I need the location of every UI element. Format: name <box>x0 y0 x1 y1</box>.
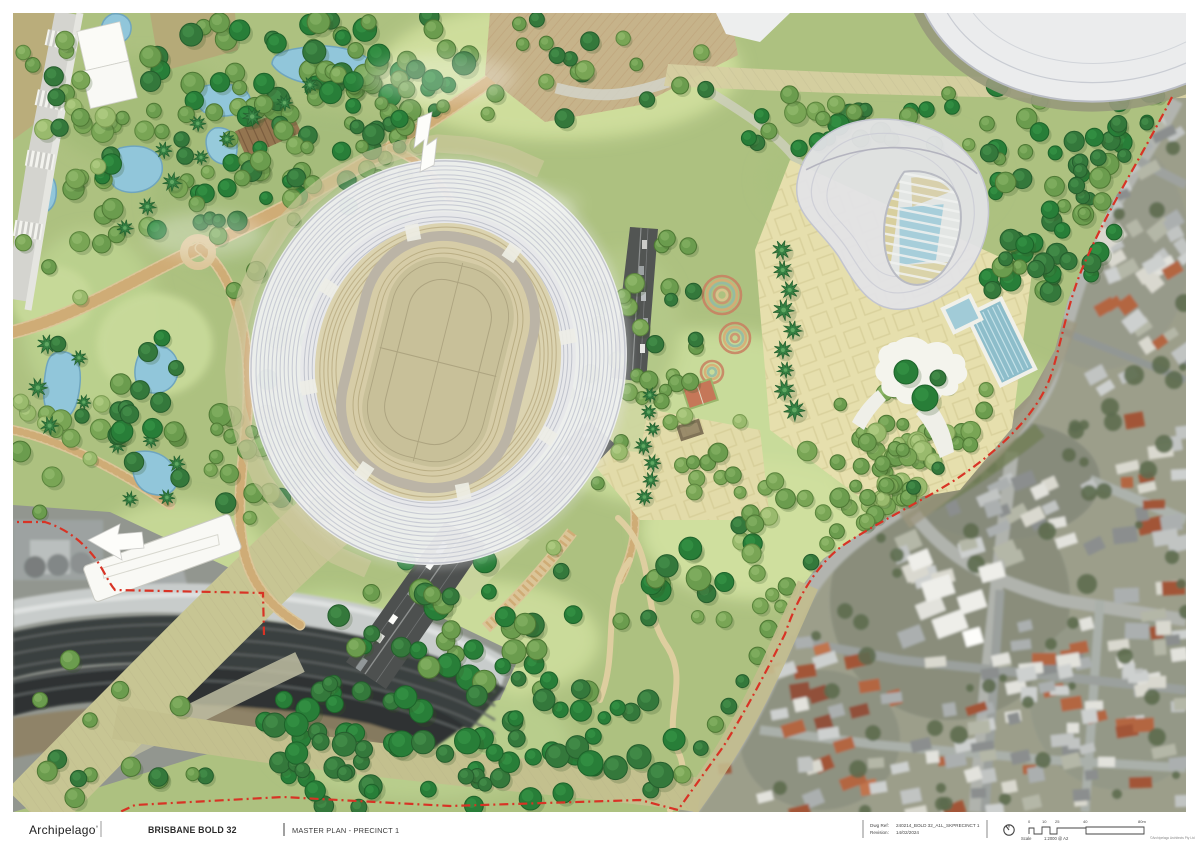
svg-text:10: 10 <box>1042 819 1047 824</box>
svg-text:Archipelago°: Archipelago° <box>29 823 99 837</box>
svg-text:240214_BOLD 32_A1L_SKPRECINCT: 240214_BOLD 32_A1L_SKPRECINCT 1 <box>896 823 980 828</box>
svg-text:25: 25 <box>1055 819 1060 824</box>
svg-text:Revision:: Revision: <box>870 830 889 835</box>
svg-text:Dwg Ref:: Dwg Ref: <box>870 823 889 828</box>
svg-text:BRISBANE BOLD 32: BRISBANE BOLD 32 <box>148 825 237 835</box>
svg-text:14/02/2024: 14/02/2024 <box>896 830 919 835</box>
svg-text:MASTER PLAN - PRECINCT 1: MASTER PLAN - PRECINCT 1 <box>292 826 399 835</box>
svg-text:80m: 80m <box>1138 819 1146 824</box>
svg-text:©Archipelago Architects Pty Lt: ©Archipelago Architects Pty Ltd <box>1150 836 1195 840</box>
svg-text:1:2000 @ A2: 1:2000 @ A2 <box>1044 836 1069 841</box>
svg-text:Scale: Scale <box>1021 836 1032 841</box>
svg-text:40: 40 <box>1083 819 1088 824</box>
